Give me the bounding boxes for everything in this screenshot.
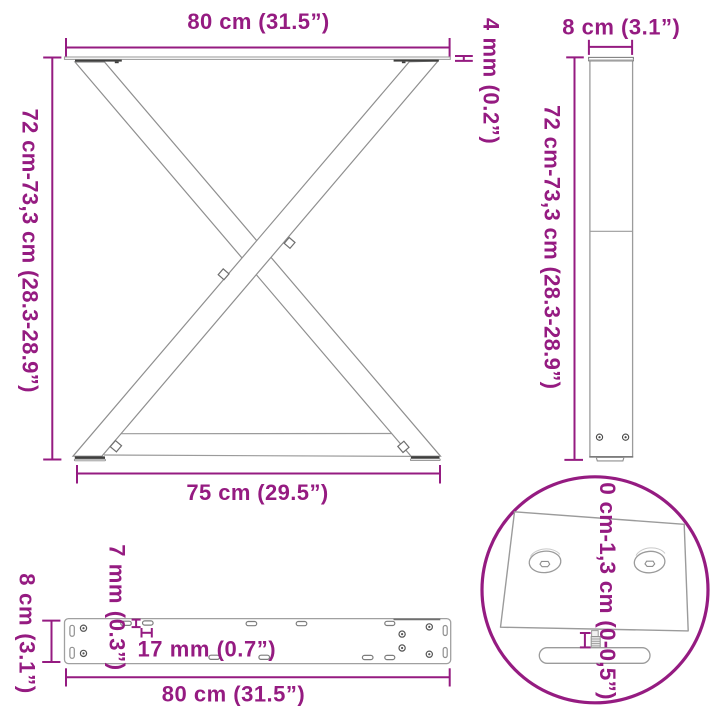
svg-text:7 mm (0.3”): 7 mm (0.3”) — [105, 544, 130, 670]
svg-text:17 mm (0.7”): 17 mm (0.7”) — [138, 636, 277, 661]
svg-text:8 cm (3.1”): 8 cm (3.1”) — [562, 15, 680, 40]
svg-text:80 cm (31.5”): 80 cm (31.5”) — [162, 681, 305, 706]
svg-text:4 mm (0.2”): 4 mm (0.2”) — [479, 18, 504, 144]
svg-text:0 cm-1,3 cm (0-0,5”): 0 cm-1,3 cm (0-0,5”) — [595, 482, 620, 700]
svg-text:72 cm-73,3 cm (28.3-28.9”): 72 cm-73,3 cm (28.3-28.9”) — [540, 105, 565, 389]
svg-text:8 cm (3.1”): 8 cm (3.1”) — [15, 573, 40, 694]
svg-text:75 cm (29.5”): 75 cm (29.5”) — [186, 480, 328, 505]
svg-text:80 cm (31.5”): 80 cm (31.5”) — [187, 9, 329, 34]
svg-text:72 cm-73,3 cm (28.3-28.9”): 72 cm-73,3 cm (28.3-28.9”) — [17, 109, 42, 393]
